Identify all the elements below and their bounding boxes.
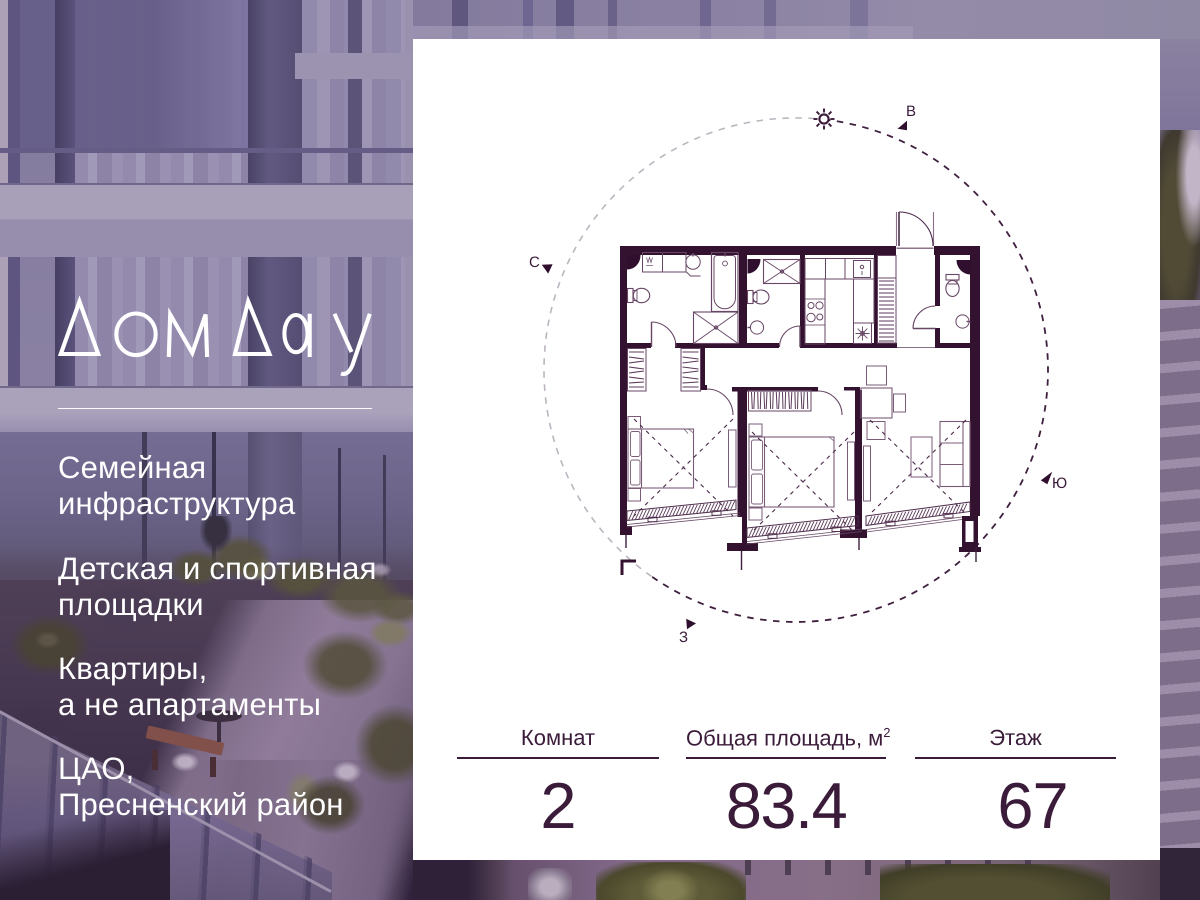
svg-text:С: С — [529, 254, 540, 271]
svg-text:В: В — [906, 103, 916, 120]
svg-text:Ю: Ю — [1052, 475, 1067, 492]
svg-text:З: З — [679, 629, 688, 646]
